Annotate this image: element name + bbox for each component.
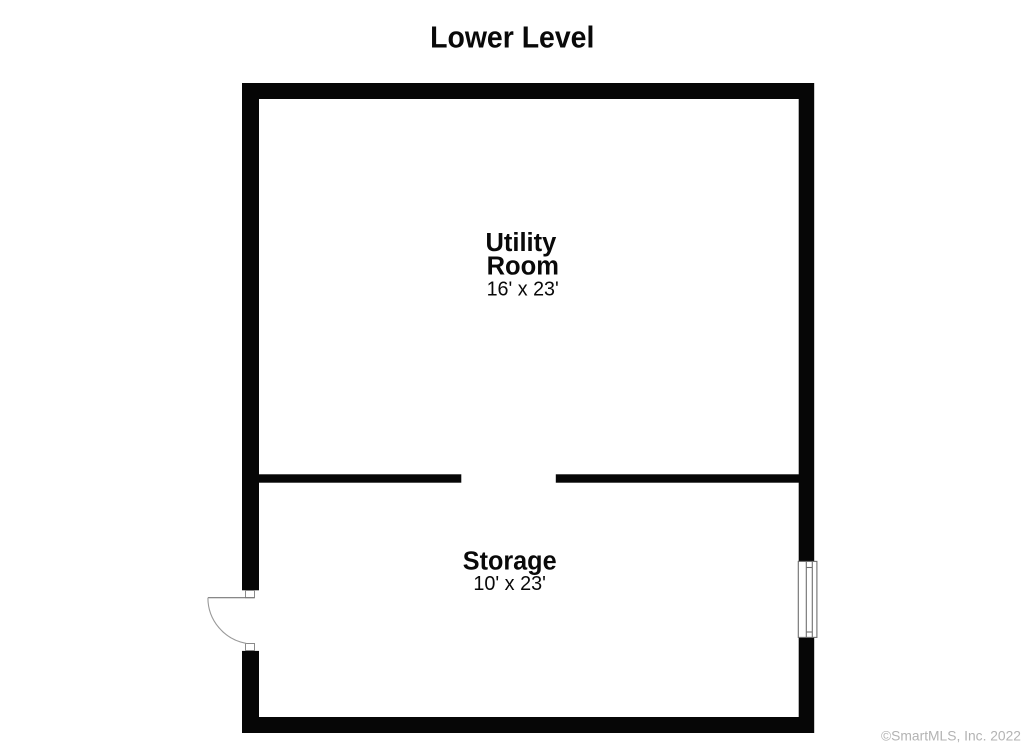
svg-text:Lower Level: Lower Level [430,19,594,54]
svg-text:10' x 23': 10' x 23' [473,572,546,595]
svg-text:16' x 23': 16' x 23' [487,278,559,301]
svg-text:Room: Room [487,253,559,281]
svg-text:©SmartMLS, Inc. 2022: ©SmartMLS, Inc. 2022 [881,727,1021,743]
